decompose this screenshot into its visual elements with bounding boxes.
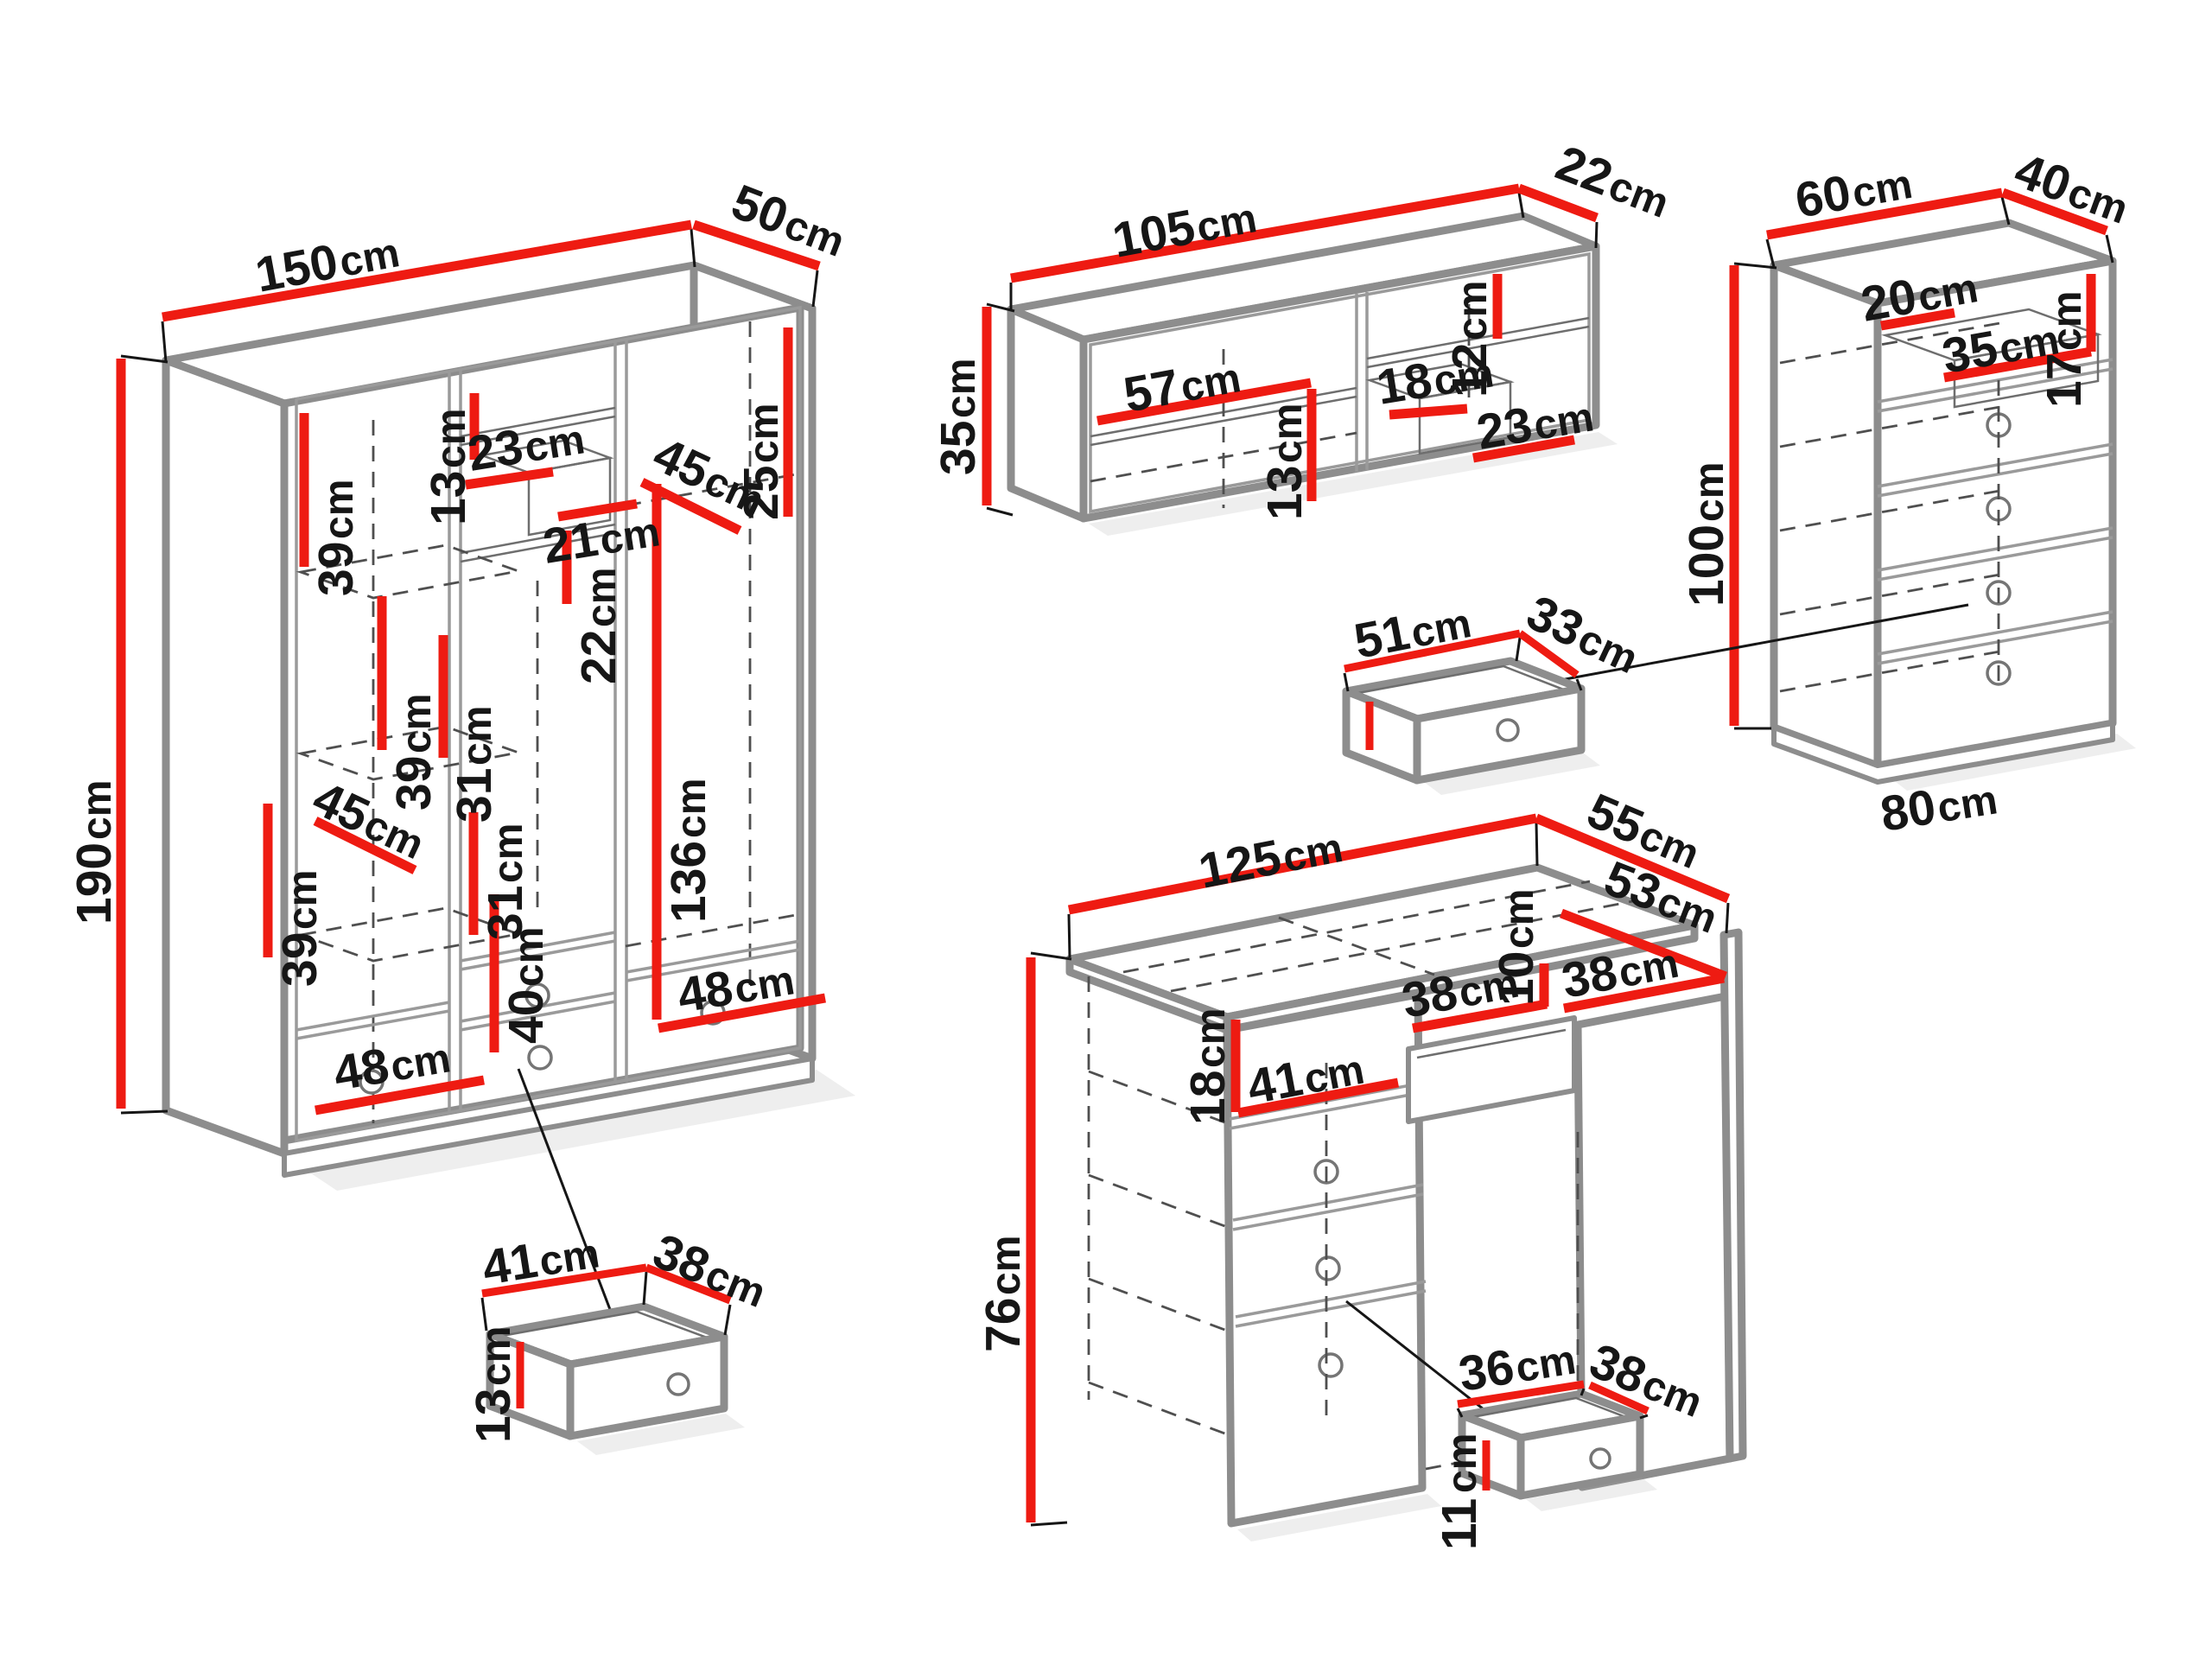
shelf-height-value: 35 — [931, 421, 986, 475]
unit-label: cm — [474, 1326, 519, 1386]
dim-value: 18 — [1180, 1071, 1236, 1125]
tick-line — [813, 270, 817, 307]
dim-value: 20 — [1857, 269, 1921, 333]
dim-value: 38 — [1558, 944, 1622, 1009]
shelf-depth-label: 22cm — [1548, 135, 1677, 228]
unit-label: cm — [1431, 350, 1497, 404]
tick-line — [121, 356, 168, 362]
wardrobe-cubby-height-label: 22cm — [571, 568, 626, 684]
unit-label: cm — [506, 927, 552, 987]
shelf-width-value: 105 — [1109, 200, 1199, 269]
dim-value: 13 — [1257, 466, 1313, 520]
unit-label: cm — [1497, 889, 1542, 949]
unit-label: cm — [280, 870, 326, 930]
unit-label: cm — [454, 706, 500, 766]
shelf-left-height-label: 13cm — [1257, 404, 1313, 520]
drawer-knob — [1497, 720, 1518, 741]
dim-value: 40 — [499, 989, 554, 1044]
wardrobe-shelf-gap2-label: 39cm — [386, 694, 442, 810]
tick-line — [1726, 903, 1728, 933]
dim-value: 80 — [1877, 779, 1940, 842]
tick-line — [1069, 914, 1070, 957]
unit-label: cm — [1935, 777, 2001, 831]
wardrobe-drawer-width-label: 41cm — [479, 1223, 603, 1295]
wardrobe-drawer-height-label: 13cm — [466, 1326, 521, 1443]
unit-label: cm — [394, 694, 440, 753]
tick-line — [1536, 823, 1537, 866]
wardrobe-top-niche-label: 13cm — [421, 409, 476, 525]
dim-value: 11 — [1432, 1498, 1487, 1550]
dim-value: 51 — [1350, 605, 1414, 670]
chest-compartment-height-label: 17cm — [2037, 291, 2092, 408]
dim-value: 39 — [386, 756, 442, 810]
tick-line — [482, 1298, 486, 1331]
wardrobe-mid-gap1-label: 31cm — [447, 706, 502, 823]
dim-value: 48 — [674, 960, 737, 1024]
chest-height-label: 100cm — [1679, 462, 1734, 607]
tick-line — [1031, 1522, 1067, 1525]
wardrobe-height-value: 190 — [67, 842, 122, 925]
dim-value: 18 — [1373, 353, 1436, 416]
wardrobe-drawer-depth-label: 38cm — [645, 1224, 774, 1319]
dim-value: 136 — [661, 841, 716, 923]
desk-dashed-left-2 — [1089, 1175, 1227, 1227]
dim-value: 13 — [466, 1389, 521, 1443]
dim-value: 35 — [1938, 321, 2002, 385]
desk-drawer-height-label: 11cm — [1432, 1433, 1487, 1550]
dim-value: 38 — [1398, 964, 1462, 1029]
chest-width-label: 60cm — [1791, 154, 1916, 229]
desk-drawer-detail-drawing — [1458, 1384, 1657, 1511]
wardrobe-right-top-label: 25cm — [734, 404, 789, 520]
shelf-height-label: 35cm — [931, 359, 986, 475]
dim-value: 25 — [734, 466, 789, 520]
unit-label: cm — [1193, 195, 1261, 251]
wardrobe-height-label: 190cm — [67, 780, 122, 925]
shelf-width-label: 105cm — [1109, 188, 1261, 268]
chest-drawer-width-label: 51cm — [1350, 593, 1475, 670]
dim-value: 23 — [1473, 397, 1536, 461]
unit-label: cm — [387, 1035, 454, 1090]
unit-label: cm — [1440, 1433, 1485, 1493]
tick-line — [1596, 222, 1597, 248]
dim-value: 57 — [1120, 359, 1184, 423]
unit-label: cm — [731, 957, 798, 1013]
dim-value: 21 — [539, 512, 602, 575]
chest-width-value: 60 — [1791, 165, 1855, 229]
unit-label: cm — [699, 1252, 772, 1317]
desk-height-value: 76 — [976, 1298, 1031, 1352]
tick-line — [725, 1305, 730, 1335]
desk-dashed-left-4 — [1089, 1382, 1227, 1434]
dim-value: 41 — [479, 1233, 542, 1296]
unit-label: cm — [1687, 462, 1732, 522]
unit-label: cm — [1513, 1337, 1580, 1391]
unit-label: cm — [1603, 162, 1675, 226]
desk-dashed-left-3 — [1089, 1279, 1227, 1331]
unit-label: cm — [1265, 404, 1311, 463]
dim-value: 39 — [272, 932, 327, 987]
unit-label: cm — [1530, 394, 1597, 449]
furniture-dimension-diagram: 150cm 50cm 190cm 39cm 13cm 23cm 21cm 45c… — [0, 0, 2212, 1659]
drawer-knob — [1591, 1449, 1610, 1468]
wardrobe-mid-gap2-label: 31cm — [478, 823, 533, 940]
unit-label: cm — [1188, 1008, 1234, 1068]
wardrobe-left-side — [166, 360, 284, 1154]
unit-label: cm — [597, 509, 664, 563]
chest-height-value: 100 — [1679, 524, 1734, 607]
unit-label: cm — [2062, 169, 2133, 233]
desk-width-value: 125 — [1194, 829, 1286, 899]
unit-label: cm — [741, 404, 787, 463]
dim-value: 31 — [447, 768, 502, 823]
unit-label: cm — [2044, 291, 2090, 351]
unit-label: cm — [1279, 825, 1346, 881]
dim-value: 41 — [1243, 1051, 1307, 1116]
desk-right-panel-edge — [1724, 932, 1743, 1459]
dim-value: 22 — [571, 630, 626, 684]
unit-label: cm — [316, 480, 362, 539]
tick-line — [691, 229, 695, 267]
tick-line — [1767, 239, 1774, 267]
dim-value: 36 — [1455, 1339, 1518, 1402]
dim-value: 23 — [464, 419, 527, 482]
unit-label: cm — [522, 416, 588, 471]
wardrobe-shelf-gap1-label: 39cm — [308, 480, 364, 596]
dim-value: 48 — [330, 1038, 393, 1102]
unit-label: cm — [669, 779, 715, 838]
dim-value: 39 — [308, 542, 364, 596]
unit-label: cm — [983, 1236, 1029, 1295]
wardrobe-hanging-label: 136cm — [661, 779, 716, 923]
wardrobe-drawer-zone-label: 40cm — [499, 927, 554, 1044]
desk-width-label: 125cm — [1194, 817, 1347, 899]
drawer-knob — [1317, 1257, 1339, 1280]
desk-height-label: 76cm — [976, 1236, 1031, 1352]
diagram-canvas: 150cm 50cm 190cm 39cm 13cm 23cm 21cm 45c… — [0, 0, 2212, 1659]
tick-line — [1516, 638, 1520, 661]
chest-drawing — [1514, 193, 2136, 791]
tick-line — [1031, 953, 1071, 959]
unit-label: cm — [537, 1230, 603, 1285]
drawer-knob — [529, 1046, 551, 1069]
dim-value: 13 — [421, 471, 476, 525]
tick-line — [121, 1111, 168, 1113]
tick-line — [644, 1272, 646, 1305]
wardrobe-shelf-gap3-label: 39cm — [272, 870, 327, 987]
unit-label: cm — [579, 568, 625, 627]
unit-label: cm — [938, 359, 984, 418]
drawer-knob — [1319, 1354, 1342, 1376]
dim-value: 17 — [2037, 353, 2092, 408]
unit-label: cm — [1450, 281, 1496, 340]
tick-line — [162, 321, 166, 362]
unit-label: cm — [74, 780, 120, 840]
drawer-knob — [668, 1374, 689, 1395]
desk-niche-height-label: 18cm — [1180, 1008, 1236, 1125]
unit-label: cm — [486, 823, 531, 883]
tick-line — [987, 508, 1013, 515]
shelf-left-side — [1011, 309, 1084, 518]
